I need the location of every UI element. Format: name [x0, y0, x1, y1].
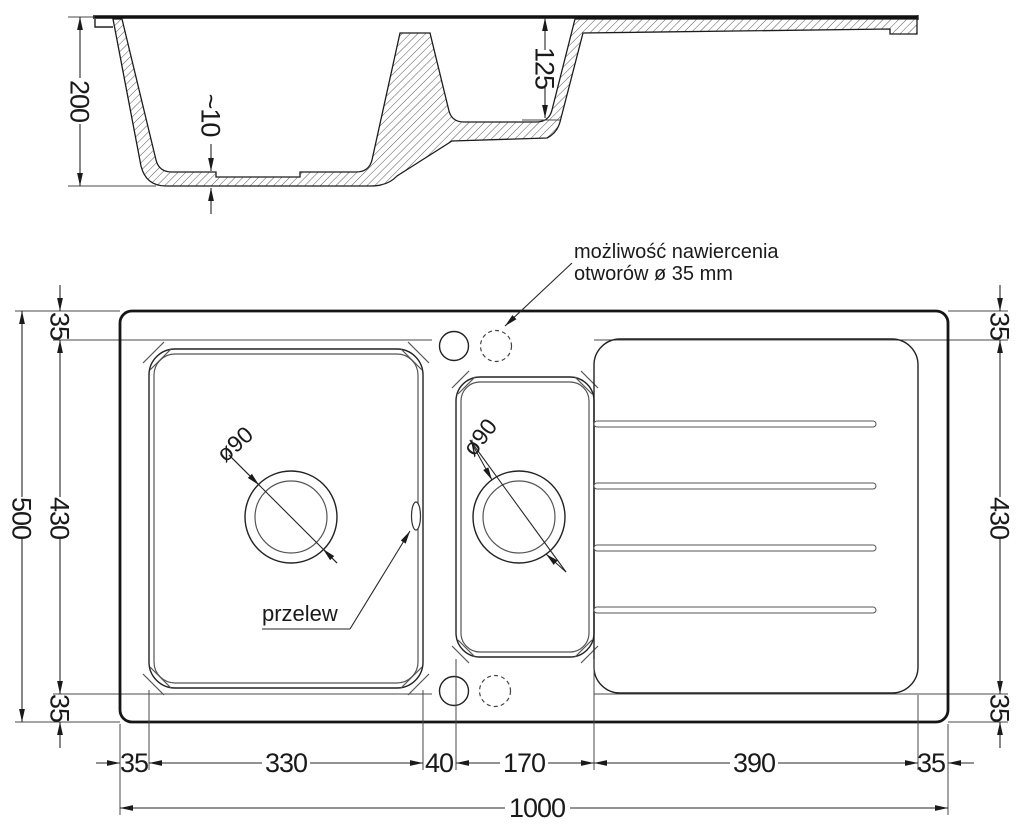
dim-depth-total-label: 200: [65, 80, 95, 122]
tap-hole: [440, 332, 469, 361]
small-drain-diameter-label: ø90: [457, 413, 502, 460]
dim-bottom-4-label: 390: [733, 748, 775, 778]
cross-section-material: [113, 19, 917, 186]
tap-hole: [440, 677, 469, 706]
drainboard-groove: [594, 483, 876, 489]
overflow-opening: [412, 502, 421, 530]
main-bowl-inner-rim: [154, 354, 418, 683]
cross-section-view: 200 ~10 125: [65, 15, 918, 214]
drainboard-grooves: [594, 421, 876, 613]
dimensions-left: 500 35 430 35: [7, 285, 120, 748]
dim-bottom-2-label: 40: [425, 748, 453, 778]
main-drain-arrow: [323, 549, 337, 563]
dim-bottom-3-label: 170: [503, 748, 545, 778]
overflow-label: przelew: [262, 601, 338, 626]
dim-left-mid-label: 430: [45, 497, 75, 539]
optional-tap-hole-dashed: [481, 331, 512, 362]
dim-right-bottom-label: 35: [985, 694, 1015, 722]
drainboard-panel: [594, 339, 918, 693]
main-drain-diameter-label: ø90: [211, 421, 258, 467]
dim-right-top-label: 35: [985, 312, 1015, 340]
dim-bottom-0-label: 35: [120, 748, 148, 778]
small-bowl-corner-chamfers: [452, 371, 598, 663]
dim-bottom-1-label: 330: [265, 748, 307, 778]
main-bowl-corner-chamfers: [143, 342, 429, 695]
main-bowl-outer-rim: [149, 349, 423, 688]
small-drain-arrow: [546, 554, 566, 572]
drainboard-groove: [594, 421, 876, 427]
plan-view: ø90 ø90 przelew możliwość nawiercenia ot…: [53, 241, 1008, 722]
dim-bottom-5-label: 35: [917, 748, 945, 778]
drainboard-groove: [594, 545, 876, 551]
technical-drawing: 200 ~10 125: [0, 0, 1024, 827]
dim-small-bowl-depth-label: 125: [530, 47, 560, 89]
dim-bottom-total-label: 1000: [509, 793, 565, 823]
drill-note-leader-arrow: [505, 263, 572, 326]
dim-floor-thickness-label: ~10: [196, 94, 226, 137]
sink-technical-drawing-page: 200 ~10 125: [0, 0, 1024, 827]
dim-right-mid-label: 430: [985, 497, 1015, 539]
dim-left-total-label: 500: [7, 497, 37, 539]
sink-outline: [120, 311, 948, 722]
dim-left-bottom-label: 35: [45, 694, 75, 722]
optional-tap-hole-dashed: [480, 676, 511, 707]
small-drain-outer-circle: [473, 471, 565, 563]
drill-note-line1: możliwość nawiercenia: [574, 241, 779, 263]
left-rim-notch: [95, 19, 113, 27]
drill-note-line2: otworów ø 35 mm: [574, 263, 733, 285]
dimensions-right: 35 430 35: [948, 285, 1015, 748]
dim-left-top-label: 35: [45, 312, 75, 340]
overflow-leader-arrow: [350, 531, 410, 629]
drainboard-groove: [594, 607, 876, 613]
